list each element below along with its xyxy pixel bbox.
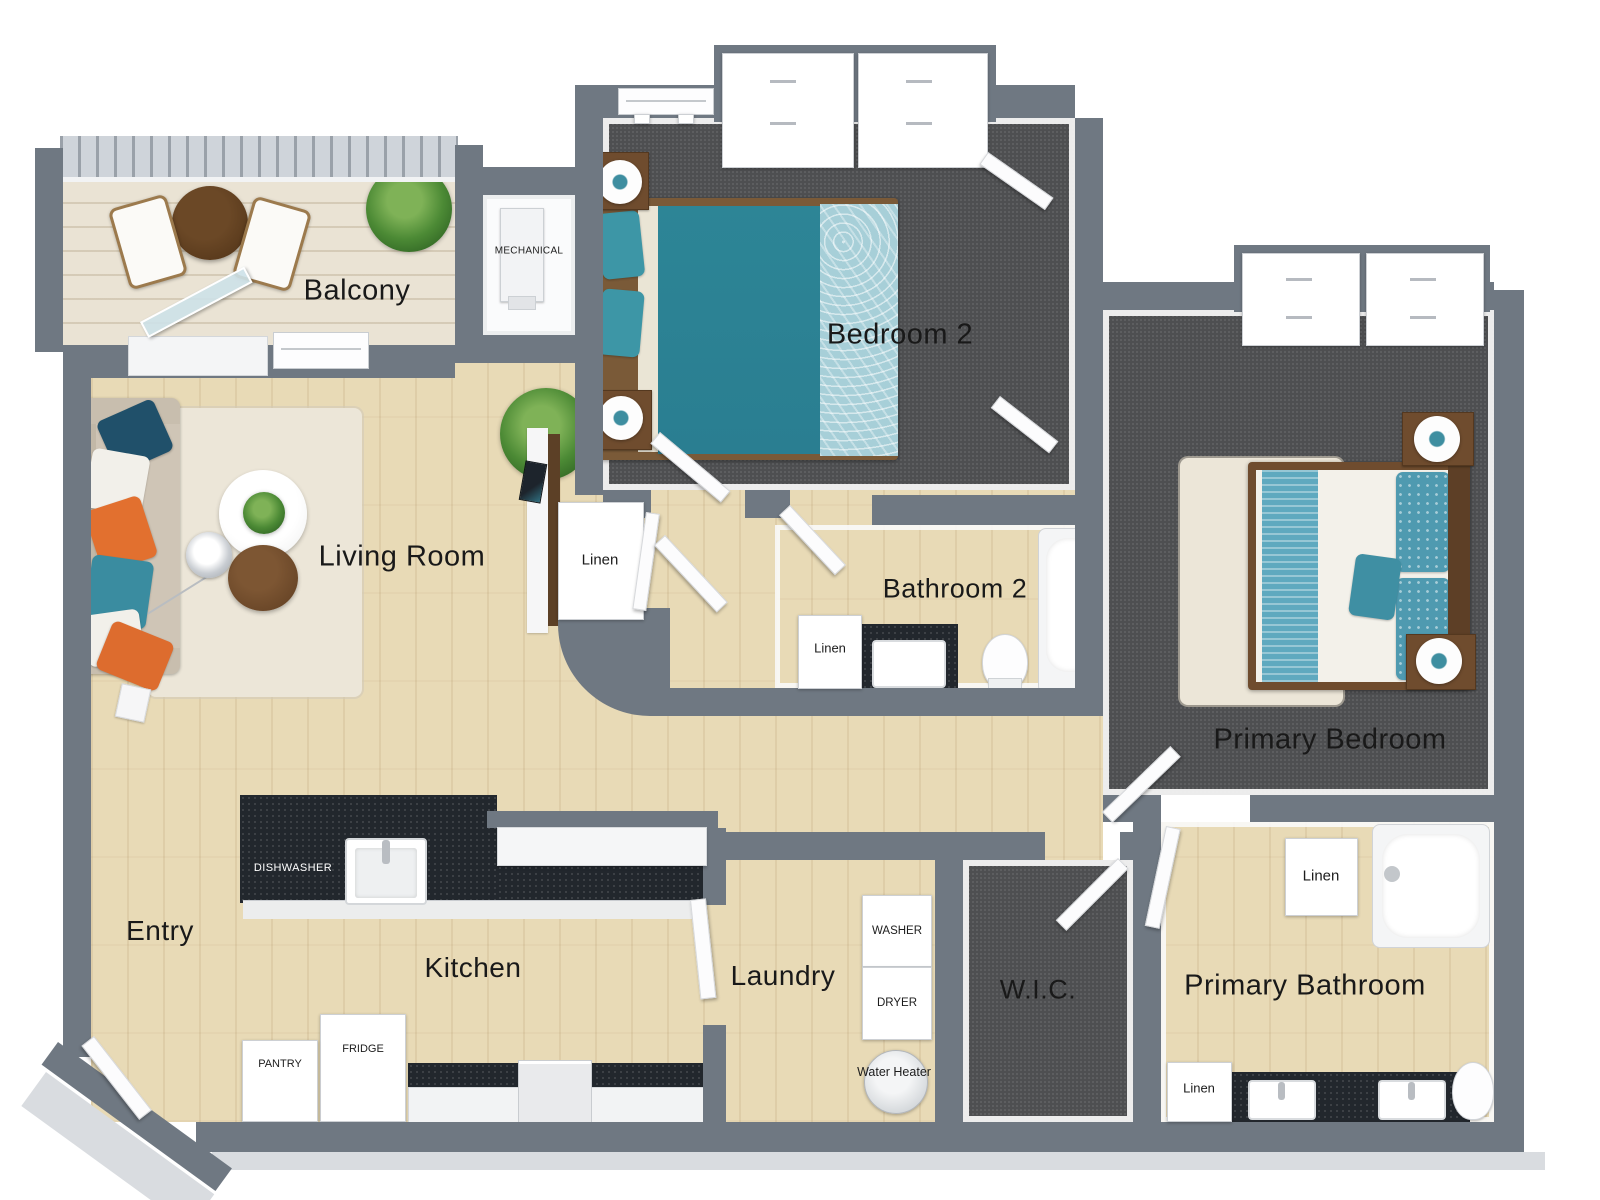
bathroom2-sink	[872, 640, 946, 688]
wall-balcony-left	[35, 148, 63, 352]
wall-laundry-wic-divider	[935, 832, 963, 1122]
living-window	[273, 332, 369, 369]
wall-laundry-top	[703, 832, 935, 860]
label-fridge: FRIDGE	[342, 1043, 384, 1055]
wall-right	[1494, 290, 1524, 1152]
mechanical-unit-cap	[508, 296, 536, 310]
sliding-door-track	[128, 336, 268, 376]
wall-bathroom2-bottom	[660, 688, 1103, 716]
closet-handle	[1410, 278, 1436, 281]
wall-kitchen-north-strip	[487, 811, 718, 828]
wall-mechanical-top	[455, 167, 575, 195]
bedroom2-lamp-top	[598, 160, 642, 204]
bedroom2-duvet	[658, 206, 822, 454]
kitchen-fridge	[320, 1014, 406, 1122]
kitchen-faucet-icon	[382, 840, 390, 864]
wall-primary-bath-divider-right	[1250, 795, 1494, 822]
room-label-bedroom2: Bedroom 2	[827, 319, 973, 352]
label-water-heater: Water Heater	[857, 1065, 931, 1079]
label-pantry: PANTRY	[258, 1058, 302, 1070]
bedroom2-pillow-2	[597, 288, 645, 357]
closet-handle	[906, 122, 932, 125]
bedroom2-closet-2	[858, 53, 988, 168]
primary-closet-2	[1366, 253, 1484, 346]
primary-lamp-bottom	[1416, 638, 1462, 684]
wall-bottom	[196, 1122, 1524, 1152]
bedroom2-window-sill-2	[678, 114, 694, 124]
closet-handle	[1286, 316, 1312, 319]
label-dishwasher: DISHWASHER	[254, 862, 332, 874]
wall-bedroom2-left	[575, 85, 603, 495]
bedroom2-window-sill-1	[634, 114, 650, 124]
closet-handle	[1410, 316, 1436, 319]
primary-bath-faucet-1	[1278, 1082, 1285, 1100]
water-heater	[864, 1050, 928, 1114]
arc-lamp-head	[186, 532, 232, 578]
primary-closet-1	[1242, 253, 1360, 346]
bedroom2-window-line	[626, 100, 706, 102]
label-linen-hall: Linen	[582, 552, 619, 569]
tv-panel	[527, 428, 548, 633]
side-table-brown	[228, 545, 298, 611]
room-label-kitchen: Kitchen	[425, 952, 522, 984]
wall-step-right-of-bedroom2	[1075, 118, 1103, 712]
label-linen-bathroom2: Linen	[814, 641, 846, 656]
primary-bed-runner	[1262, 470, 1318, 682]
kitchen-island-return	[497, 865, 706, 903]
wall-wic-top-right	[1120, 832, 1133, 860]
closet-handle	[906, 80, 932, 83]
label-dryer: DRYER	[877, 997, 917, 1009]
bedroom2-closet-1	[722, 53, 854, 168]
balcony-table	[172, 186, 248, 260]
wall-bathroom2-top	[872, 495, 1103, 525]
closet-handle	[770, 80, 796, 83]
primary-pillow-folded	[1348, 553, 1402, 621]
kitchen-stove	[518, 1060, 592, 1124]
label-mechanical: MECHANICAL	[495, 246, 564, 257]
primary-bath-toilet	[1452, 1062, 1494, 1120]
living-window-line	[281, 348, 361, 350]
room-label-entry: Entry	[126, 915, 194, 947]
label-linen-primary-upper: Linen	[1303, 868, 1340, 885]
kitchen-pantry	[242, 1040, 318, 1122]
primary-tub-faucet-icon	[1384, 866, 1400, 882]
wall-wic-top-left	[935, 832, 1045, 860]
room-label-living-room: Living Room	[319, 541, 486, 574]
closet-handle	[770, 122, 796, 125]
room-label-wic: W.I.C.	[1000, 975, 1077, 1006]
closet-handle	[1286, 278, 1312, 281]
slab-bottom	[212, 1152, 1545, 1170]
coffee-table-plant-icon	[243, 492, 285, 534]
label-washer: WASHER	[872, 925, 922, 937]
pergola-roof	[60, 136, 458, 182]
kitchen-island-base	[243, 900, 706, 919]
wall-kitchen-laundry-lower	[703, 1025, 726, 1122]
room-label-primary-bedroom: Primary Bedroom	[1213, 724, 1446, 757]
primary-tub-basin	[1382, 834, 1480, 938]
primary-bath-faucet-2	[1408, 1082, 1415, 1100]
primary-lamp-top	[1414, 416, 1460, 462]
wall-living-left	[63, 345, 91, 1057]
primary-pillow-1	[1396, 472, 1450, 572]
bedroom2-pillow-1	[597, 210, 646, 280]
bedroom2-lamp-bottom	[599, 396, 643, 440]
room-label-balcony: Balcony	[304, 275, 411, 308]
room-label-primary-bathroom: Primary Bathroom	[1184, 970, 1426, 1003]
room-label-bathroom2: Bathroom 2	[883, 574, 1028, 605]
floor-plan: Balcony Living Room Bedroom 2 Primary Be…	[0, 0, 1600, 1200]
label-linen-primary-lower: Linen	[1183, 1081, 1215, 1096]
room-label-laundry: Laundry	[731, 960, 836, 992]
kitchen-wall-counter	[497, 827, 707, 866]
